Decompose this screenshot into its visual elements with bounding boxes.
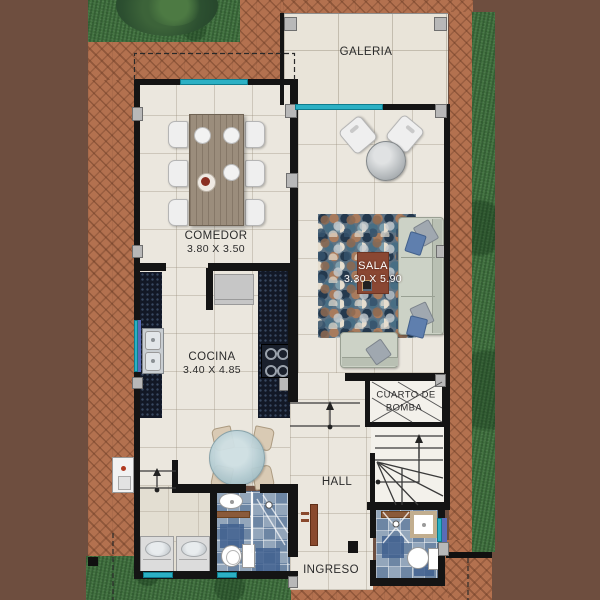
label-ingreso: INGRESO [303, 564, 359, 576]
site-wall-bottom-right [446, 552, 492, 558]
label-sala-dims: 3.30 X 5.90 [344, 273, 402, 285]
round-side-table [366, 141, 406, 181]
lounge-chair-slot [349, 124, 359, 133]
wall-comedor-south-a [134, 263, 166, 271]
drain [422, 523, 426, 527]
wall-comedor-south-b [208, 263, 298, 271]
door-hinge [301, 519, 309, 522]
room-floor-stairs [371, 423, 444, 507]
kitchen-counter-right [258, 268, 290, 418]
column [288, 576, 298, 588]
food [201, 177, 210, 186]
column [286, 173, 298, 188]
washer-lid [181, 541, 207, 557]
plate [223, 164, 240, 181]
label-galeria: GALERIA [340, 46, 393, 58]
wall-cocina-east [288, 269, 298, 402]
column [132, 377, 143, 389]
wall-bathR-west-a [370, 510, 376, 538]
room-floor-galeria [284, 14, 448, 105]
column [435, 374, 446, 387]
wall-stairs-west-stub [370, 453, 375, 507]
bath-right-dark-tiles [382, 536, 404, 558]
heater-vent [118, 476, 131, 490]
armchair-back [342, 357, 398, 366]
label-hall: HALL [322, 476, 352, 488]
washing-machine [176, 536, 210, 572]
serving-dish [197, 173, 216, 192]
dining-chair [245, 121, 265, 148]
toilet-bowl [407, 547, 429, 569]
wall-ingreso-east-stub [348, 541, 358, 553]
label-comedor: COMEDOR [185, 230, 248, 242]
washing-machine [140, 536, 174, 572]
drain [230, 500, 234, 504]
label-cocina-dims: 3.40 X 4.85 [183, 364, 241, 376]
water-heater [112, 457, 134, 493]
toilet-tank [242, 544, 255, 568]
wall-east [444, 104, 450, 507]
burner [265, 365, 277, 377]
refrigerator-door-line [215, 299, 253, 300]
kitchen-sink [142, 328, 164, 374]
column [438, 542, 449, 556]
lounge-chair-slot [405, 125, 415, 134]
dining-chair [245, 199, 265, 226]
label-comedor-dims: 3.80 X 3.50 [187, 243, 245, 255]
floor-plan: GALERIA COMEDOR 3.80 X 3.50 SALA 3.30 X … [0, 0, 600, 600]
sofa-cushion-line [401, 257, 435, 258]
bath-shelf [381, 511, 412, 518]
label-sala: SALA [358, 260, 388, 272]
entry-door [310, 504, 318, 546]
toilet-bowl [221, 545, 242, 567]
window [180, 79, 248, 85]
dining-chair [168, 121, 188, 148]
heater-pilot-light [121, 466, 126, 471]
kitchen-round-table [209, 430, 265, 486]
faucet [151, 338, 155, 342]
dining-table [189, 114, 244, 226]
washer-lid [145, 541, 171, 557]
washer-panel [179, 559, 207, 560]
toilet-seat [226, 550, 240, 565]
dining-chair [168, 160, 188, 187]
window [295, 104, 383, 110]
brick-strip-left [88, 80, 136, 567]
window [143, 572, 173, 578]
site-wall-corner [88, 557, 98, 566]
washer-panel [143, 559, 171, 560]
bath-shelf [216, 511, 250, 518]
column [435, 104, 447, 118]
brick-strip-above-galeria [283, 0, 473, 14]
column [284, 17, 297, 31]
dining-chair [245, 160, 265, 187]
window [217, 572, 237, 578]
wall-hall-west [288, 484, 298, 557]
column [434, 17, 447, 31]
sofa-cushion-line [401, 296, 435, 297]
plate [223, 127, 240, 144]
plate [194, 127, 211, 144]
faucet [151, 359, 155, 363]
bath-left-dark-tiles [256, 548, 280, 572]
column [132, 107, 143, 121]
door-hinge [301, 512, 309, 515]
stove [261, 344, 289, 378]
wall-bathR-south [370, 578, 445, 586]
dining-chair [168, 199, 188, 226]
brick-path-right [449, 12, 472, 553]
column [132, 245, 143, 258]
window-frame [138, 320, 141, 372]
label-cocina: COCINA [188, 351, 235, 363]
grass-top-left [88, 0, 240, 42]
wall-laundry-bath-divider [210, 489, 217, 575]
label-cuarto-de-bomba-1: CUARTO DE [376, 390, 435, 401]
wall-bathL-north-a [172, 484, 246, 493]
bathroom-sink [219, 493, 243, 509]
grass-strip-right [472, 12, 495, 552]
wall-fridge-niche [206, 268, 213, 310]
bathroom-sink-square [410, 511, 437, 538]
label-cuarto-de-bomba-2: BOMBA [386, 403, 422, 414]
refrigerator [214, 274, 254, 305]
burner [265, 348, 277, 360]
window-frame [442, 518, 447, 542]
